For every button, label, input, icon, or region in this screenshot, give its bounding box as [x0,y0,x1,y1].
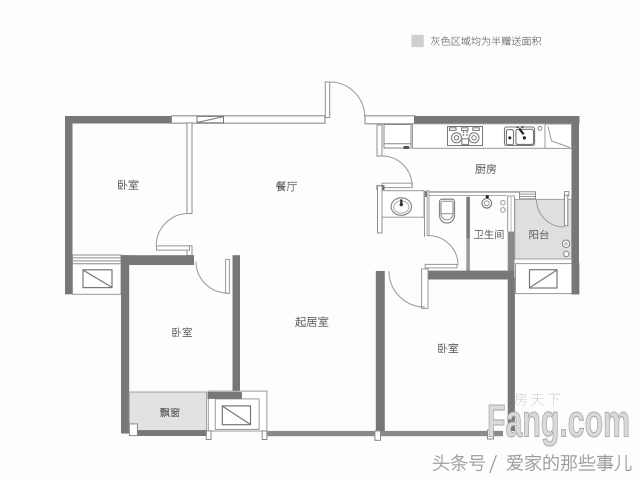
svg-text:Fang.com: Fang.com [487,396,630,447]
